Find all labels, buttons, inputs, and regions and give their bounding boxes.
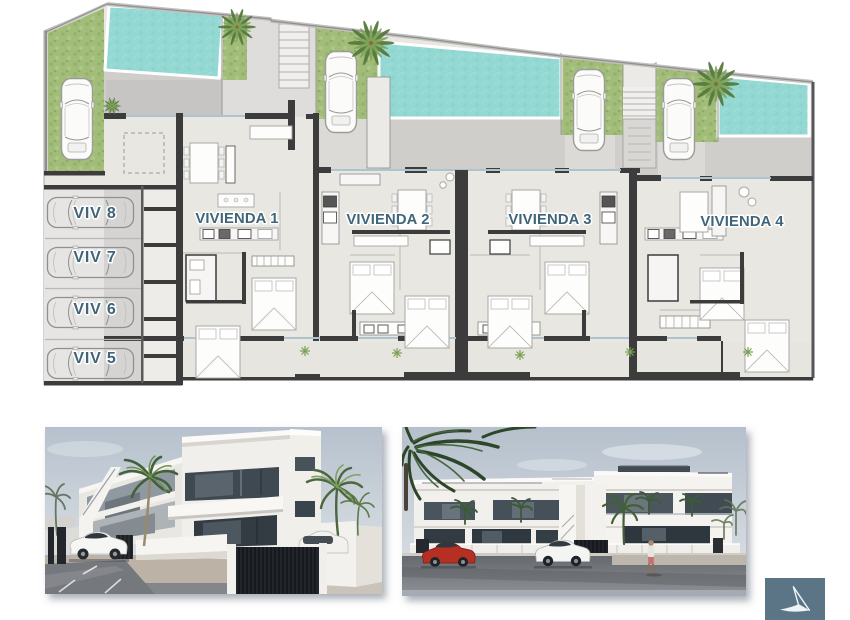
svg-text:VIVIENDA 2: VIVIENDA 2 xyxy=(346,212,429,228)
svg-text:VIVIENDA 3: VIVIENDA 3 xyxy=(508,212,591,228)
svg-text:VIV 7: VIV 7 xyxy=(73,249,116,266)
svg-text:VIVIENDA 1: VIVIENDA 1 xyxy=(195,211,278,227)
svg-text:VIV 5: VIV 5 xyxy=(73,350,116,367)
svg-text:VIV 8: VIV 8 xyxy=(73,205,116,222)
svg-text:VIVIENDA 4: VIVIENDA 4 xyxy=(700,214,784,230)
svg-text:VIV 6: VIV 6 xyxy=(73,301,116,318)
